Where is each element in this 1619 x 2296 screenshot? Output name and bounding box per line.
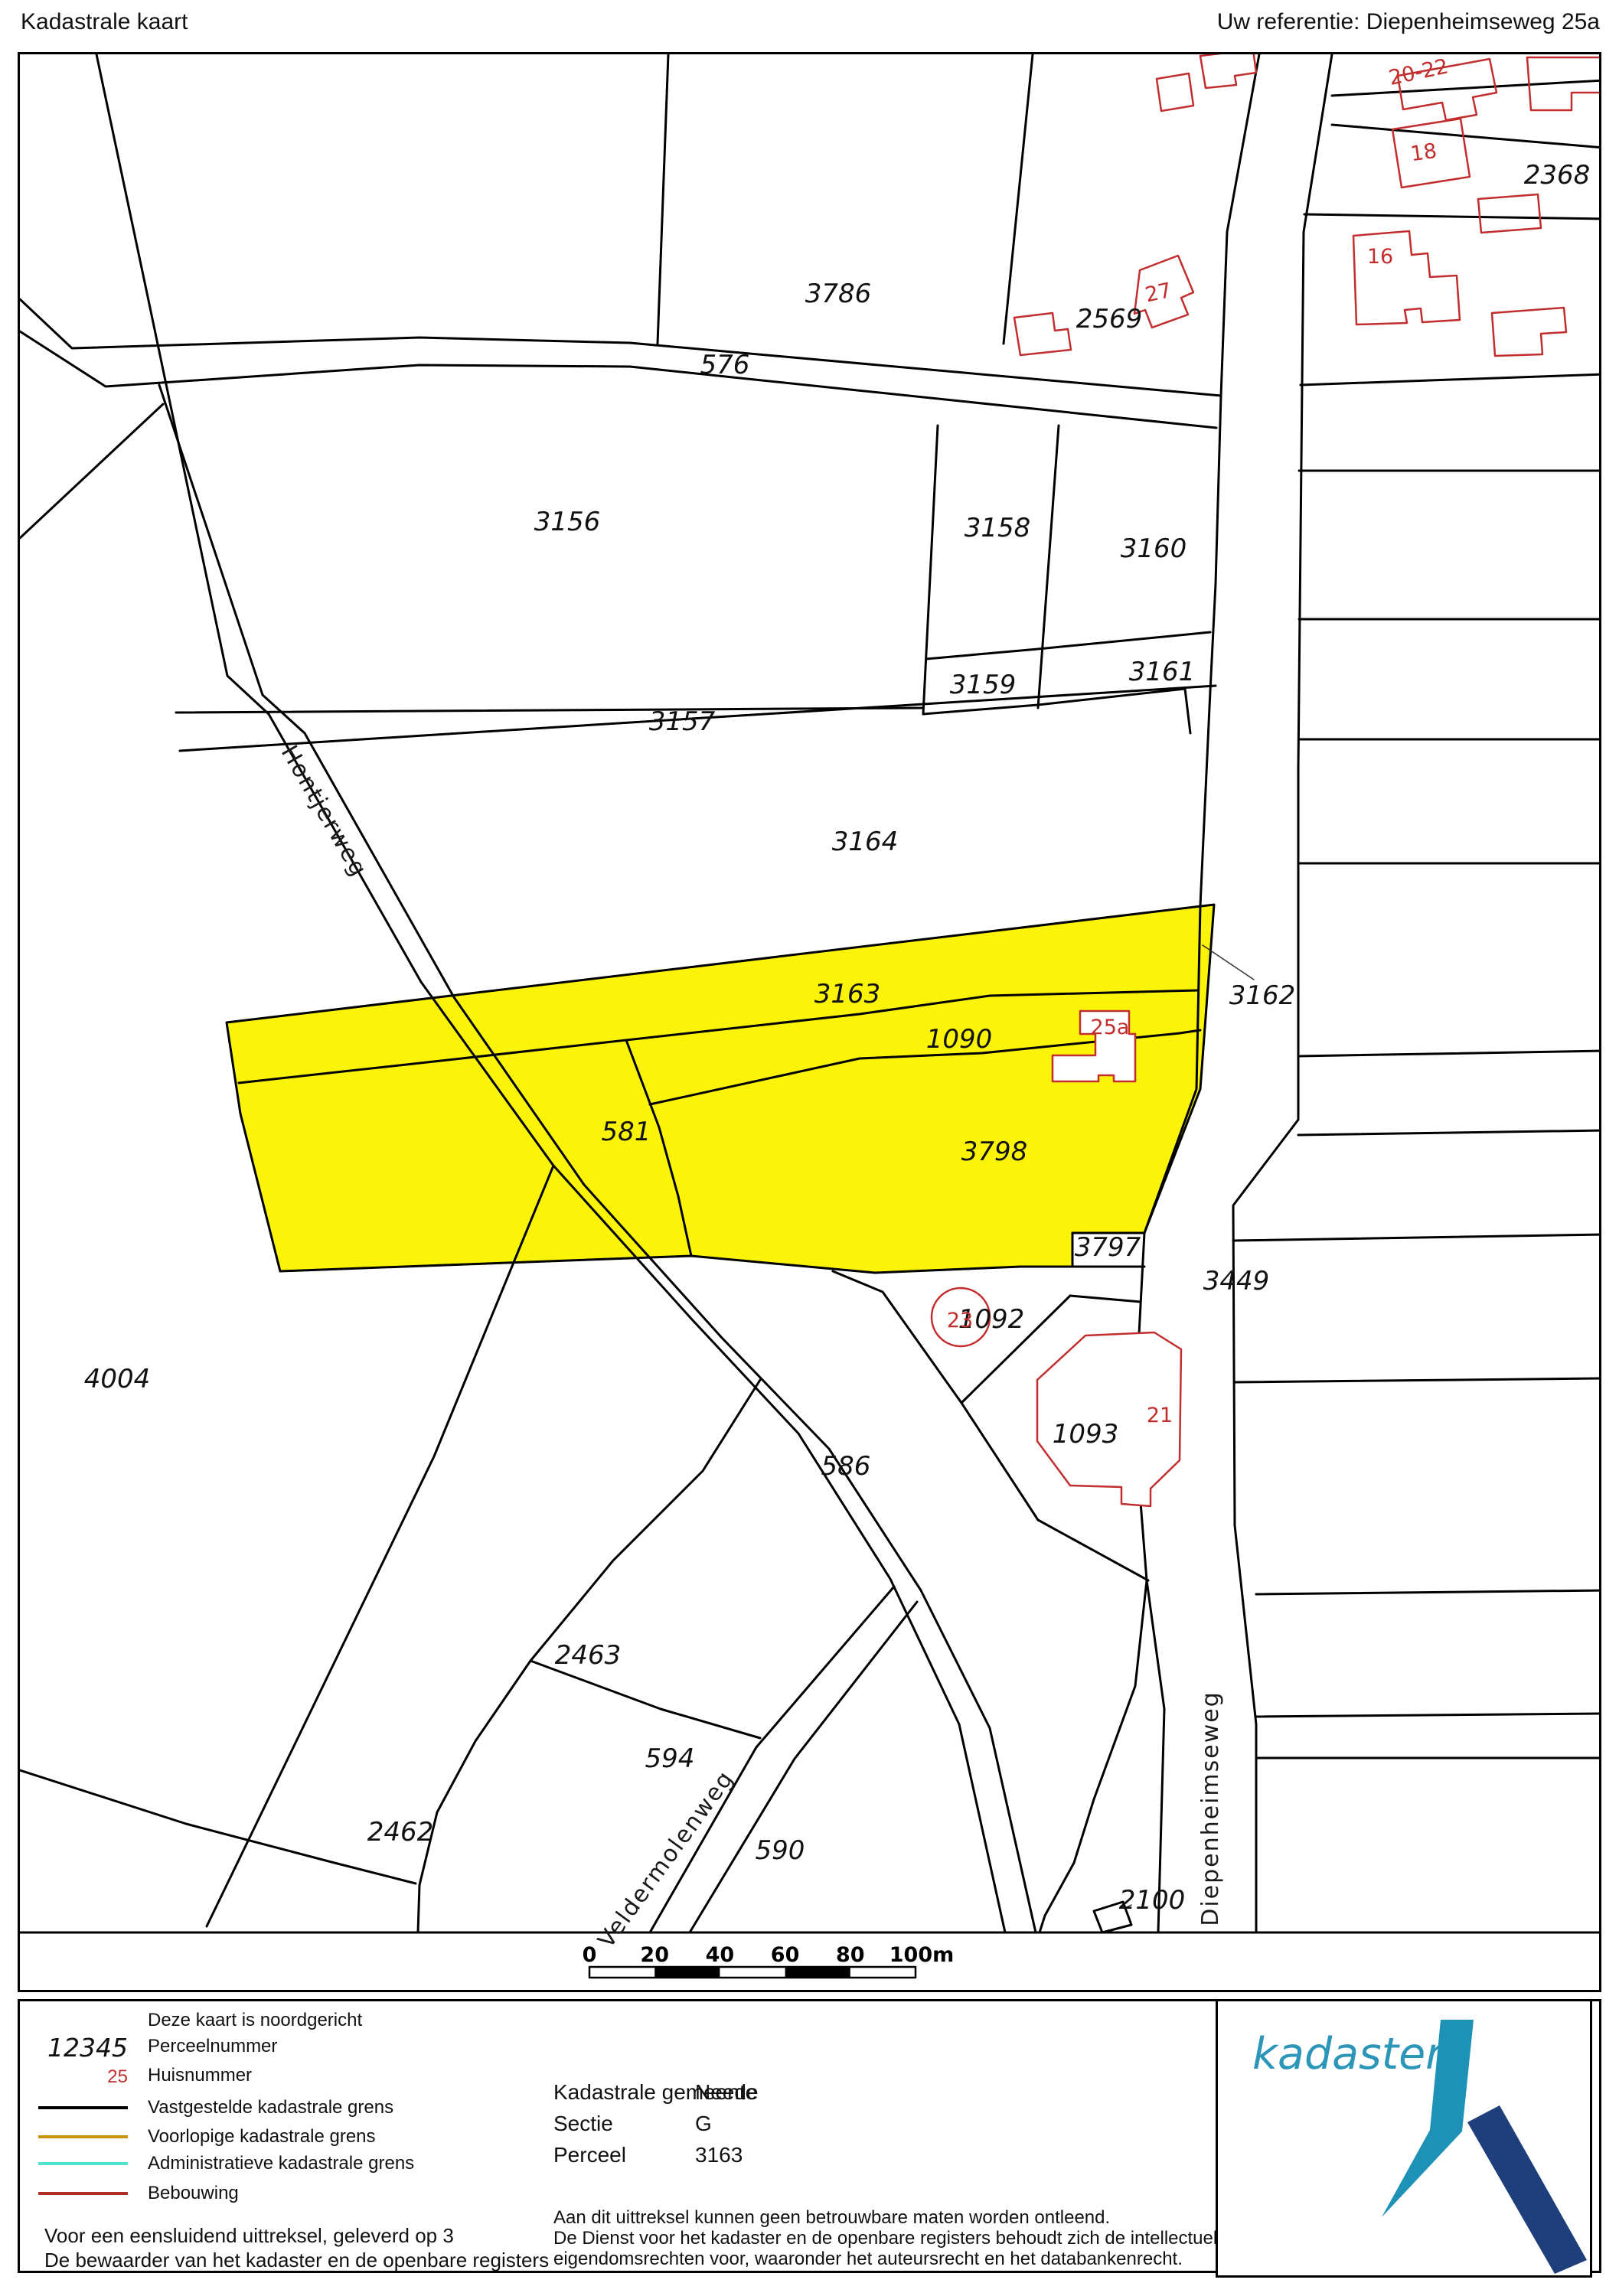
parcel-line <box>1038 1520 1148 1580</box>
building-outline <box>1157 73 1193 111</box>
reference-text: Uw referentie: Diepenheimseweg 25a <box>1217 9 1600 35</box>
cadastral-map: 3786256957631563158316031593161315731643… <box>20 54 1599 1990</box>
kadaster-logo-text: kadaster <box>1252 2029 1446 2079</box>
parcel-line <box>1004 54 1033 344</box>
parcel-line <box>1298 1130 1599 1135</box>
parcel-label-3159: 3159 <box>950 670 1017 700</box>
house-number-18: 18 <box>1409 139 1438 166</box>
scale-tick-60: 60 <box>771 1943 800 1967</box>
scale-tick-end: 100m <box>889 1943 955 1967</box>
parcel-line <box>1233 1234 1599 1241</box>
house-number-25a: 25a <box>1091 1016 1130 1039</box>
parcel-line <box>923 705 1038 714</box>
map-frame: 3786256957631563158316031593161315731643… <box>18 52 1601 1992</box>
parcel-line <box>1070 1296 1141 1302</box>
house-number-21: 21 <box>1147 1404 1173 1427</box>
parcel-line <box>207 1166 553 1926</box>
parcel-line <box>1040 1580 1147 1932</box>
parcel-label-1093: 1093 <box>1053 1419 1119 1450</box>
house-number-16: 16 <box>1367 245 1393 269</box>
road-label-diepenheimseweg: Diepenheimseweg <box>1197 1691 1224 1926</box>
house-number-23: 23 <box>947 1309 973 1332</box>
parcel-label-3157: 3157 <box>649 706 716 737</box>
scale-tick-40: 40 <box>706 1943 735 1967</box>
parcel-label-594: 594 <box>645 1743 695 1774</box>
parcel-label-2463: 2463 <box>555 1640 622 1671</box>
scale-bar-segment <box>785 1967 850 1978</box>
parcel-line <box>20 1770 416 1883</box>
parcel-label-1090: 1090 <box>926 1024 993 1055</box>
scale-tick-80: 80 <box>836 1943 865 1967</box>
scale-bar: 020406080100m <box>583 1943 955 1978</box>
parcel-label-590: 590 <box>756 1835 805 1866</box>
kadaster-logo: kadaster <box>1218 2001 1590 2275</box>
parcel-label-3786: 3786 <box>805 279 872 309</box>
parcel-line <box>926 649 1038 659</box>
house-number-20-22: 20-22 <box>1387 54 1451 90</box>
parcel-line <box>1235 1378 1599 1382</box>
parcel-label-4004: 4004 <box>84 1364 151 1394</box>
parcel-label-3161: 3161 <box>1129 657 1196 687</box>
parcel-line <box>1038 632 1210 649</box>
parcel-label-3158: 3158 <box>965 513 1031 543</box>
building-outline <box>1492 308 1566 356</box>
parcel-label-576: 576 <box>700 350 750 380</box>
kadaster-map-page: Kadastrale kaart Uw referentie: Diepenhe… <box>0 0 1619 2296</box>
scale-bar-body <box>589 1967 916 1978</box>
parcel-label-2100: 2100 <box>1119 1885 1186 1916</box>
kadaster-mark-dark <box>1467 2105 1587 2274</box>
kadaster-logo-box: kadaster <box>1216 1999 1592 2278</box>
building-outline <box>1200 54 1256 88</box>
road-label-hontjerweg: Hontjerweg <box>276 741 373 882</box>
parcel-label-2462: 2462 <box>367 1817 434 1848</box>
parcel-line <box>530 1661 760 1738</box>
parcel-line <box>658 54 668 344</box>
road-label-veldermolenweg: Veldermolenweg <box>593 1766 740 1953</box>
parcel-label-3797: 3797 <box>1075 1232 1141 1263</box>
parcel-line <box>1257 1714 1599 1717</box>
map-labels: 3786256957631563158316031593161315731643… <box>84 54 1591 1953</box>
scale-tick-0: 0 <box>583 1943 597 1967</box>
parcel-line <box>1298 1051 1599 1056</box>
house-number-27: 27 <box>1143 279 1173 307</box>
parcel-label-2368: 2368 <box>1524 160 1591 191</box>
parcel-line <box>961 1403 1038 1520</box>
parcel-label-3156: 3156 <box>534 507 601 537</box>
road-veldermolenweg-east <box>690 1602 917 1932</box>
parcel-line <box>1332 80 1599 96</box>
parcel-line <box>20 404 163 538</box>
building-outline <box>1478 194 1541 233</box>
building-outline <box>1014 313 1071 355</box>
parcel-label-3449: 3449 <box>1203 1266 1270 1296</box>
page-title: Kadastrale kaart <box>21 9 188 35</box>
parcel-line <box>1304 214 1599 219</box>
parcel-line <box>923 426 938 714</box>
parcel-line <box>1301 374 1599 385</box>
scale-tick-20: 20 <box>640 1943 669 1967</box>
parcel-label-2569: 2569 <box>1076 304 1143 334</box>
parcel-line <box>1038 426 1059 708</box>
parcel-label-3162: 3162 <box>1229 980 1296 1011</box>
parcel-label-586: 586 <box>821 1451 871 1482</box>
parcel-label-581: 581 <box>602 1117 651 1147</box>
parcel-label-3164: 3164 <box>832 827 899 857</box>
parcel-line <box>1256 1590 1599 1594</box>
scale-bar-segment <box>654 1967 720 1978</box>
parcel-label-3163: 3163 <box>814 979 881 1009</box>
parcel-label-3798: 3798 <box>961 1137 1028 1167</box>
parcel-label-3160: 3160 <box>1121 533 1187 564</box>
